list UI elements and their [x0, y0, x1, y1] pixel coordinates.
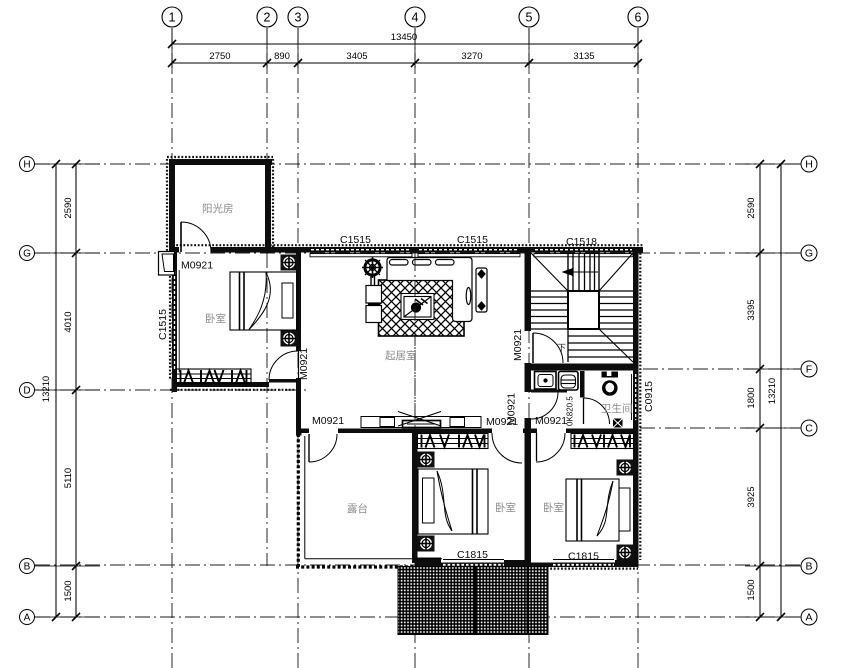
svg-text:1500: 1500 — [746, 579, 757, 600]
svg-text:2590: 2590 — [746, 197, 757, 218]
svg-text:M0921: M0921 — [512, 329, 524, 361]
svg-text:3: 3 — [295, 11, 302, 25]
svg-text:M0921: M0921 — [312, 415, 344, 427]
svg-text:C1518: C1518 — [566, 236, 597, 248]
svg-text:下: 下 — [557, 343, 566, 353]
svg-text:露台: 露台 — [347, 502, 368, 515]
svg-text:M0921: M0921 — [181, 260, 213, 272]
svg-text:阳光房: 阳光房 — [202, 202, 234, 215]
svg-text:6: 6 — [635, 11, 642, 25]
svg-text:D: D — [23, 386, 30, 397]
svg-text:起居室: 起居室 — [385, 349, 417, 362]
svg-text:1: 1 — [169, 11, 176, 25]
svg-text:A: A — [24, 613, 31, 624]
svg-text:M0921: M0921 — [298, 348, 310, 380]
svg-text:3135: 3135 — [573, 51, 594, 62]
svg-text:5110: 5110 — [63, 468, 74, 488]
svg-text:1800: 1800 — [746, 387, 757, 408]
svg-text:C1815: C1815 — [457, 549, 488, 561]
svg-text:3270: 3270 — [461, 51, 482, 62]
svg-text:M0921: M0921 — [535, 415, 567, 427]
svg-text:C1515: C1515 — [340, 234, 371, 246]
svg-text:C: C — [805, 423, 813, 435]
svg-text:卧室: 卧室 — [495, 501, 516, 514]
svg-text:H: H — [805, 159, 813, 171]
svg-text:F: F — [806, 364, 812, 376]
svg-text:4: 4 — [412, 11, 419, 25]
svg-text:H: H — [23, 160, 30, 171]
svg-text:G: G — [23, 249, 31, 260]
svg-text:M0921: M0921 — [506, 393, 518, 425]
svg-text:C0915: C0915 — [643, 381, 655, 412]
svg-text:卫生间: 卫生间 — [601, 402, 633, 415]
svg-text:C1815: C1815 — [568, 551, 599, 563]
svg-text:B: B — [24, 562, 31, 573]
svg-text:5: 5 — [526, 11, 533, 25]
svg-text:3405: 3405 — [346, 51, 367, 62]
svg-text:3395: 3395 — [746, 299, 757, 320]
svg-text:卧室: 卧室 — [543, 501, 564, 514]
svg-text:C1515: C1515 — [157, 309, 169, 340]
svg-text:3925: 3925 — [746, 486, 757, 507]
svg-text:1500: 1500 — [63, 580, 74, 601]
svg-text:C1515: C1515 — [457, 234, 488, 246]
svg-text:13450: 13450 — [391, 32, 417, 43]
svg-text:2590: 2590 — [63, 197, 74, 218]
svg-text:0K820.5: 0K820.5 — [566, 396, 575, 426]
svg-text:13210: 13210 — [767, 378, 778, 404]
svg-text:G: G — [805, 248, 813, 260]
svg-text:890: 890 — [274, 51, 290, 62]
svg-text:2: 2 — [264, 11, 271, 25]
svg-text:4010: 4010 — [63, 311, 74, 332]
svg-text:B: B — [805, 561, 812, 573]
svg-text:A: A — [805, 612, 812, 624]
svg-text:2750: 2750 — [209, 51, 230, 62]
svg-text:卧室: 卧室 — [205, 312, 226, 325]
svg-text:13210: 13210 — [41, 376, 52, 402]
